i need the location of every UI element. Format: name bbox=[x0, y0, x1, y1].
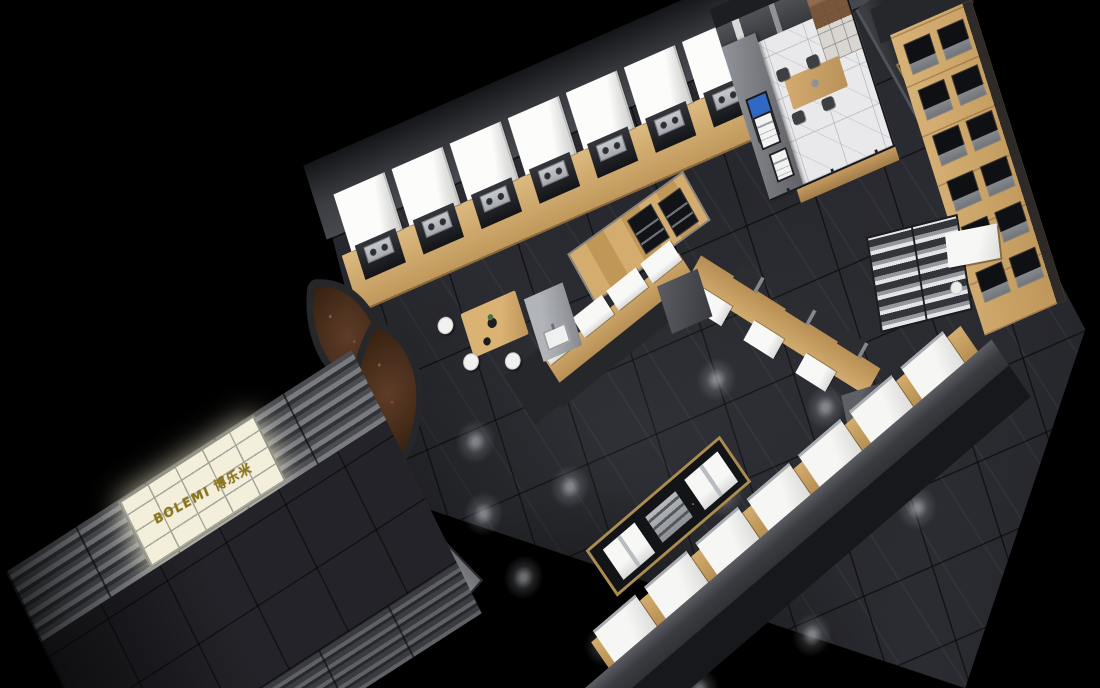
oven-niche bbox=[918, 79, 954, 121]
oven-niche bbox=[1009, 247, 1045, 289]
gas-hob bbox=[421, 210, 453, 238]
oven-niche bbox=[965, 110, 1001, 152]
gas-hob bbox=[479, 185, 511, 213]
oven-niche bbox=[932, 124, 968, 166]
demo-sink bbox=[542, 322, 571, 351]
oven-niche bbox=[994, 201, 1030, 243]
oven-niche bbox=[980, 155, 1016, 197]
gas-hob bbox=[537, 160, 569, 188]
floor-spotlight bbox=[496, 547, 550, 608]
showroom-render: BOLEMI 博乐米 bbox=[0, 0, 1100, 688]
oven-niche bbox=[937, 19, 973, 61]
table-tray bbox=[482, 336, 491, 347]
plant-vase bbox=[486, 316, 498, 329]
oven-niche bbox=[946, 170, 982, 212]
oven-niche bbox=[951, 64, 987, 106]
oven-niche bbox=[903, 33, 939, 75]
oven-niche bbox=[975, 261, 1011, 303]
gas-hob bbox=[596, 134, 628, 162]
gas-hob bbox=[654, 109, 686, 137]
island-steel-unit bbox=[645, 491, 693, 542]
